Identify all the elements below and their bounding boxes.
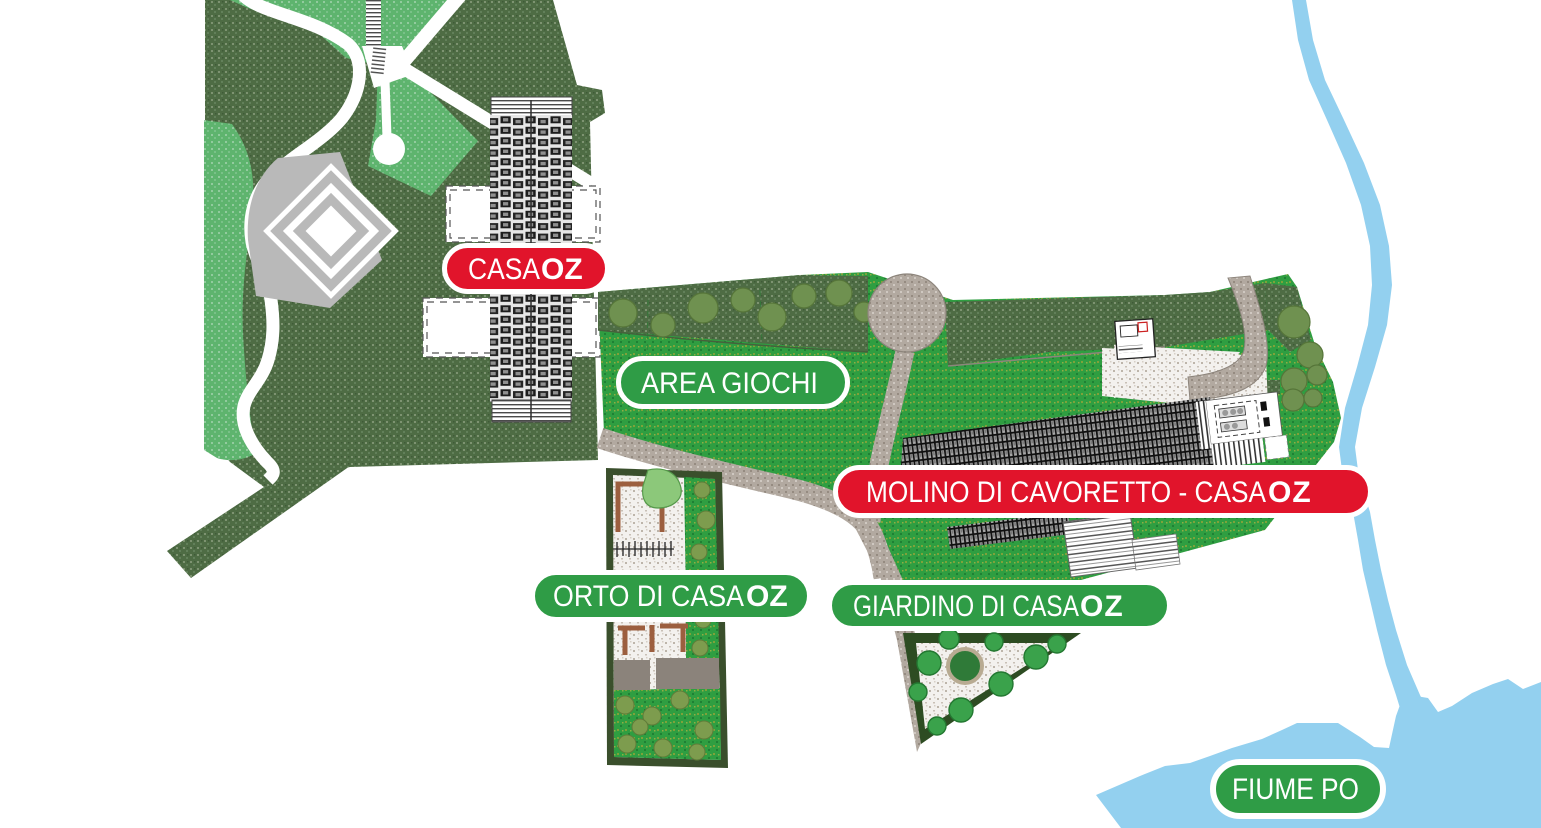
svg-text:CASA: CASA	[468, 253, 540, 286]
svg-text:OZ: OZ	[541, 253, 583, 286]
svg-text:FIUME PO: FIUME PO	[1232, 773, 1359, 806]
svg-text:AREA GIOCHI: AREA GIOCHI	[641, 367, 818, 400]
svg-text:OZ: OZ	[1268, 476, 1312, 509]
svg-text:GIARDINO DI CASA: GIARDINO DI CASA	[853, 590, 1079, 623]
svg-text:OZ: OZ	[746, 580, 788, 613]
svg-text:ORTO DI CASA: ORTO DI CASA	[553, 580, 744, 613]
svg-text:OZ: OZ	[1080, 590, 1124, 623]
svg-text:MOLINO DI CAVORETTO - CASA: MOLINO DI CAVORETTO - CASA	[866, 476, 1266, 509]
